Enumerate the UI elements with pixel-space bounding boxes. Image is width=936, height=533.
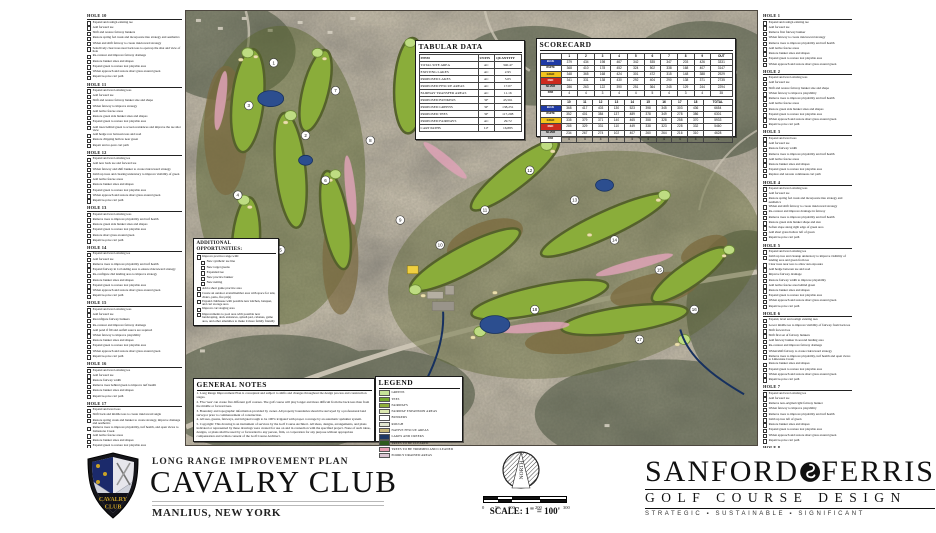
- hole-item-text: Add hedge row between tees and road: [93, 133, 142, 137]
- crest-club-name-line1: CAVALRY: [99, 497, 128, 503]
- quantity-cell: 5.05: [495, 76, 521, 83]
- hole-item-text: Remove non-original right fairway bunker: [769, 402, 823, 406]
- tabular-data-table: ITEMUNITSQUANTITYTOTAL SITE AREAAC340.47…: [419, 54, 522, 132]
- checkbox-icon: [763, 226, 767, 230]
- tabular-data-panel: TABULAR DATA ITEMUNITSQUANTITYTOTAL SITE…: [415, 40, 525, 140]
- hole-item: Repair/re-pave cart path: [87, 199, 182, 204]
- checkbox-icon: [87, 258, 91, 262]
- checkbox-icon: [763, 169, 767, 173]
- checkbox-icon: [87, 289, 91, 293]
- hole-item-text: Limb up trees and clearing understory to…: [93, 173, 180, 177]
- score-cell: 71: [704, 136, 732, 142]
- checkbox-icon: [87, 42, 91, 46]
- checkbox-icon: [763, 274, 767, 278]
- checkbox-icon: [763, 32, 767, 36]
- checkbox-icon: [87, 158, 91, 162]
- hole-item-text: Re-contour and improve drainage in fairw…: [769, 210, 826, 214]
- checkbox-icon: [87, 229, 91, 233]
- checkbox-icon: [763, 97, 767, 101]
- hole-block: HOLE 5Expand and level existing teeLimb …: [763, 243, 852, 310]
- hole-item-text: Repair and re-pave cart path: [93, 144, 129, 148]
- hole-block: HOLE 10Expand and realign existing teeAd…: [87, 13, 182, 80]
- checkbox-icon: [197, 313, 201, 317]
- score-cell: 4: [578, 90, 595, 96]
- hole-item-text: Expand green to restore lost playable ar…: [769, 368, 822, 372]
- item-cell: PROPOSED TEES: [419, 110, 478, 117]
- legend-panel: LEGEND GREENSTEESFAIRWAYSFAIRWAY EXPANSI…: [375, 376, 463, 442]
- hole-item-text: Repair/re-pave cart path: [93, 294, 124, 298]
- legend-swatch: [379, 434, 390, 439]
- hole-item-text: Expand, level and realign existing tees: [769, 318, 818, 322]
- legend-label: LAKES AND CREEKS: [392, 435, 424, 438]
- legend-swatch: [379, 390, 390, 395]
- item-cell: TOTAL SITE AREA: [419, 62, 478, 69]
- item-cell: EXISTING LAKES: [419, 69, 478, 76]
- hole-item-text: Add forward tee: [93, 313, 114, 317]
- hole-item-text: Widen and shift fairway to create risk/r…: [769, 205, 838, 209]
- hole-item-text: Widen/shift fairway to create risk/rewar…: [769, 350, 832, 354]
- column-header: QUANTITY: [495, 55, 521, 62]
- hole-item-text: Expand green to restore lost playable ar…: [93, 120, 146, 124]
- hole-item-text: Add hedge between tee and road: [769, 268, 811, 272]
- units-cell: SF: [478, 110, 495, 117]
- hole-item-text: Repair/re-pave cart path: [769, 123, 800, 127]
- general-note: 5. Copyright: This drawing is an instrum…: [197, 423, 372, 439]
- checkbox-icon: [87, 390, 91, 394]
- scorecard-back-nine: 101112131415161718TOTALBLUE3684174031305…: [540, 99, 733, 143]
- opportunity-text: Add a short game practice area: [202, 287, 242, 291]
- checkbox-icon: [763, 423, 767, 427]
- checkbox-icon: [763, 63, 767, 67]
- scale-bar-bottom-row: [483, 500, 567, 504]
- crest-club-name-line2: CLUB: [105, 505, 122, 511]
- checkbox-icon: [87, 134, 91, 138]
- checkbox-icon: [763, 279, 767, 283]
- legend-entry: POORLY DRAINED AREAS: [379, 453, 460, 458]
- hole-item-text: Restore fairway width to improve playabi…: [769, 279, 826, 283]
- general-notes-title: GENERAL NOTES: [197, 381, 372, 391]
- hole-item-text: Widen approach and restore short grass a…: [93, 70, 161, 74]
- checkbox-icon: [763, 211, 767, 215]
- hole-item-text: Widen fairway to improve strategy: [93, 105, 137, 109]
- north-label: NORTH: [519, 461, 525, 480]
- hole-item-text: Add forward tee: [769, 81, 790, 85]
- hole-item-text: Add forward tee: [93, 94, 114, 98]
- north-arrow-compass: NORTH: [501, 450, 541, 490]
- hole-item-text: Remove trees to improve playability and …: [769, 97, 835, 101]
- checkbox-icon: [763, 350, 767, 354]
- checkbox-icon: [87, 76, 91, 80]
- checkbox-icon: [87, 60, 91, 64]
- opportunity-item: Improvements to pool area with possible …: [197, 313, 276, 324]
- opportunity-sub-text: New target greens: [207, 266, 230, 270]
- checkbox-icon: [763, 103, 767, 107]
- units-cell: AC: [478, 62, 495, 69]
- tee-label: PAR: [540, 90, 561, 96]
- checkbox-icon: [763, 373, 767, 377]
- legend-swatch: [379, 422, 390, 427]
- additional-opportunities-panel: ADDITIONAL OPPORTUNITIES: Improve practi…: [193, 238, 279, 326]
- checkbox-icon: [763, 92, 767, 96]
- checkbox-icon: [763, 413, 767, 417]
- opportunity-sub-text: New practice bunker: [207, 276, 234, 280]
- legend-entry: TREES TO BE TRIMMED AND CLEANED: [379, 447, 460, 452]
- item-cell: PROPOSED GREENS: [419, 104, 478, 111]
- legend-swatch: [379, 447, 390, 452]
- checkbox-icon: [197, 300, 201, 304]
- checkbox-icon: [201, 271, 205, 275]
- checkbox-icon: [763, 305, 767, 309]
- score-cell: 35: [711, 90, 732, 96]
- hole-item-text: Add forward tee: [93, 374, 114, 378]
- checkbox-icon: [763, 153, 767, 157]
- checkbox-icon: [763, 429, 767, 433]
- score-cell: 4: [640, 136, 656, 142]
- hole-block: HOLE 7Expand and level existing teeAdd f…: [763, 384, 852, 443]
- table-row: EXISTING LAKESAC2.95: [419, 69, 521, 76]
- checkbox-icon: [87, 434, 91, 438]
- hole-item-text: Widen approach and restore short grass a…: [769, 118, 837, 122]
- checkbox-icon: [763, 158, 767, 162]
- hole-item-text: Remove trees to improve playability and …: [769, 413, 835, 417]
- legend-entry: TEES: [379, 397, 460, 402]
- checkbox-icon: [197, 308, 201, 312]
- legend-label: TEES: [392, 398, 400, 401]
- checkbox-icon: [87, 184, 91, 188]
- designer-divider-thin: [645, 508, 935, 509]
- hole-item-text: Widen approach and restore short grass a…: [769, 434, 837, 438]
- hole-item: Repair/re-pave cart path: [763, 236, 852, 241]
- legend-label: BUNKERS: [392, 416, 408, 419]
- hole-item-text: Restore bunker sizes and shapes: [769, 362, 810, 366]
- legend-swatch: [379, 415, 390, 420]
- checkbox-icon: [87, 55, 91, 59]
- checkbox-icon: [763, 42, 767, 46]
- hole-block: HOLE 8Expand and level teesAdd forward t…: [763, 445, 852, 448]
- legend-swatch: [379, 440, 390, 445]
- hole-block: HOLE 3Expand and level teesAdd forward t…: [763, 129, 852, 178]
- hole-item-text: Restore bunker sizes and shapes: [93, 183, 134, 187]
- score-cell: 5: [644, 90, 661, 96]
- checkbox-icon: [763, 334, 767, 338]
- hole-item-text: Remove trees to improve playability and …: [769, 216, 835, 220]
- checkbox-icon: [763, 198, 767, 202]
- club-name-title: CAVALRY CLUB: [150, 466, 397, 499]
- hole-item-text: Restore green side bunker shape and size: [769, 221, 821, 225]
- hole-item-text: Restore green side bunker sizes and shap…: [769, 108, 824, 112]
- units-cell: LF: [478, 124, 495, 131]
- checkbox-icon: [87, 284, 91, 288]
- designer-subtitle: GOLF COURSE DESIGN: [645, 491, 935, 506]
- checkbox-icon: [763, 319, 767, 323]
- score-cell: 3: [594, 90, 611, 96]
- table-row: PROPOSED BUNKERSSF43,561: [419, 97, 521, 104]
- hole-block: HOLE 6Expand, level and realign existing…: [763, 311, 852, 383]
- hole-item-text: Restore bunker sizes and shapes: [93, 339, 134, 343]
- hole-marker-number: 18: [532, 307, 537, 312]
- checkbox-icon: [763, 47, 767, 51]
- hole-item-text: Shift and restore fairway bunker size an…: [93, 99, 153, 103]
- units-cell: SF: [478, 104, 495, 111]
- legend-entry: TREES TO BE CLEARED: [379, 440, 460, 445]
- legend-entry: ROUGH: [379, 422, 460, 427]
- scorecard-panel: SCORECARD 123456789OUTBLUE37943419846734…: [536, 38, 736, 137]
- checkbox-icon: [87, 395, 91, 399]
- checkbox-icon: [763, 52, 767, 56]
- hole-item-text: Expand green to restore lost playable ar…: [769, 113, 822, 117]
- general-note: 3. Boundary and topographic information …: [197, 410, 372, 418]
- checkbox-icon: [763, 148, 767, 152]
- hole-item-text: Repair/re-pave cart path: [93, 239, 124, 243]
- checkbox-icon: [197, 287, 201, 291]
- quantity-cell: 117,208: [495, 110, 521, 117]
- checkbox-icon: [763, 256, 767, 260]
- hole-item-text: Remove trees to improve playability and …: [93, 263, 159, 267]
- checkbox-icon: [763, 284, 767, 288]
- scorecard-row: PAR44344543435: [540, 90, 732, 96]
- checkbox-icon: [87, 345, 91, 349]
- hole-marker-number: 11: [483, 208, 488, 213]
- hole-item: Repair/re-pave cart path: [763, 305, 852, 310]
- checkbox-icon: [87, 116, 91, 120]
- checkbox-icon: [87, 168, 91, 172]
- hole-item-text: Repair/re-pave cart path: [769, 378, 800, 382]
- checkbox-icon: [87, 65, 91, 69]
- checkbox-icon: [763, 295, 767, 299]
- checkbox-icon: [87, 139, 91, 143]
- checkbox-icon: [763, 268, 767, 272]
- checkbox-icon: [87, 419, 91, 423]
- checkbox-icon: [87, 329, 91, 333]
- checkbox-icon: [87, 71, 91, 75]
- checkbox-icon: [87, 308, 91, 312]
- hole-marker-number: 12: [527, 168, 532, 173]
- item-cell: PROPOSED FAIRWAYS: [419, 117, 478, 124]
- hole-marker-number: 14: [612, 238, 617, 243]
- checkbox-icon: [763, 87, 767, 91]
- checkbox-icon: [87, 144, 91, 148]
- hole-item-text: Shift and restore fairway bunkers: [93, 31, 136, 35]
- crest-shield-icon: CAVALRY CLUB: [84, 451, 142, 521]
- checkbox-icon: [87, 100, 91, 104]
- opportunity-text: Improvements to pool area with possible …: [202, 313, 275, 324]
- checkbox-icon: [87, 163, 91, 167]
- scorecard-row: PAR44435444471: [540, 136, 732, 142]
- clubhouse-highlight-marker: [407, 266, 418, 274]
- quantity-cell: 29.72: [495, 117, 521, 124]
- hole-item-text: Expand and level tees: [93, 408, 121, 412]
- checkbox-icon: [87, 427, 91, 431]
- checkbox-icon: [87, 21, 91, 25]
- hole-item-text: Widen approach and restore short grass a…: [769, 63, 837, 67]
- checkbox-icon: [763, 250, 767, 254]
- hole-item-text: Expand green to restore lost playable ar…: [93, 189, 146, 193]
- units-cell: AC: [478, 69, 495, 76]
- checkbox-icon: [763, 21, 767, 25]
- hole-item-text: Add forward tee: [769, 26, 790, 30]
- checkbox-icon: [763, 142, 767, 146]
- hole-item-text: Expand green to restore lost playable ar…: [93, 284, 146, 288]
- checkbox-icon: [763, 205, 767, 209]
- designer-name-right: FERRIS: [821, 457, 935, 487]
- checkbox-icon: [763, 300, 767, 304]
- checkbox-icon: [763, 355, 767, 359]
- hole-item-text: Expand green to restore lost playable ar…: [93, 65, 146, 69]
- column-header: UNITS: [478, 55, 495, 62]
- legend-entry: FAIRWAYS: [379, 403, 460, 408]
- hole-item-text: Add forward tee: [769, 397, 790, 401]
- table-row: TOTAL SITE AREAAC340.47: [419, 62, 521, 69]
- hole-item: Repair/re-pave cart path: [87, 355, 182, 360]
- checkbox-icon: [87, 279, 91, 283]
- hole-marker-number: 10: [438, 243, 443, 248]
- score-cell: 4: [661, 90, 678, 96]
- checkbox-icon: [197, 255, 201, 259]
- checkbox-icon: [763, 378, 767, 382]
- designer-name-left: SANFORD: [645, 457, 799, 487]
- hole-item: Repair/re-pave cart path: [763, 123, 852, 128]
- hole-item-text: Expand and level existing tee: [769, 250, 807, 254]
- checkbox-icon: [87, 224, 91, 228]
- opportunity-text: Improve practice range with:: [202, 255, 239, 259]
- checkbox-icon: [87, 445, 91, 448]
- hole-item-text: Restore bunker sizes and shapes: [93, 279, 134, 283]
- checkbox-icon: [87, 173, 91, 177]
- hole-item-text: Lower middle tee to improve visibility o…: [769, 324, 851, 328]
- hole-item-text: Add native fescue areas: [93, 110, 123, 114]
- hole-item: Expand green to restore lost playable ar…: [87, 444, 182, 448]
- item-cell: PROPOSED LAKES: [419, 76, 478, 83]
- plan-sheet: 123456789101112131415161718 HOLE 10Expan…: [0, 0, 936, 533]
- hole-item-text: Expand and level existing tee: [93, 369, 131, 373]
- checkbox-icon: [87, 409, 91, 413]
- scorecard-front-nine: 123456789OUTBLUE379434198467342535347203…: [540, 53, 733, 97]
- units-cell: AC: [478, 117, 495, 124]
- hole-item-text: Add native fescue areas: [769, 158, 799, 162]
- hole-title: HOLE 8: [763, 445, 852, 448]
- hole-marker-number: 13: [572, 198, 577, 203]
- checkbox-icon: [87, 268, 91, 272]
- checkbox-icon: [87, 313, 91, 317]
- hole-item-text: Add forward tee: [769, 142, 790, 146]
- checkbox-icon: [87, 218, 91, 222]
- tabular-header-row: ITEMUNITSQUANTITY: [419, 55, 521, 62]
- quantity-cell: 11.16: [495, 90, 521, 97]
- hole-item: Widen approach and restore short grass a…: [763, 63, 852, 68]
- checkbox-icon: [87, 32, 91, 36]
- hole-item-text: Expand green to restore lost playable ar…: [93, 444, 146, 448]
- club-location: MANLIUS, NEW YORK: [152, 507, 281, 519]
- hole-item-text: Repair/re-pave cart path: [769, 236, 800, 240]
- score-cell: 4: [628, 90, 645, 96]
- checkbox-icon: [763, 263, 767, 267]
- score-cell: 3: [609, 136, 625, 142]
- checkbox-icon: [763, 439, 767, 443]
- hole-item-text: Add fairway bunker in second landing are…: [769, 339, 824, 343]
- hole-item-text: Widen approach and restore short grass a…: [93, 350, 161, 354]
- checkbox-icon: [87, 234, 91, 238]
- score-cell: 3: [677, 90, 694, 96]
- legend-label: FAIRWAYS: [392, 404, 408, 407]
- hole-title: HOLE 1: [763, 13, 852, 20]
- hole-item-text: Expand and level existing tees: [769, 187, 808, 191]
- checkbox-icon: [87, 319, 91, 323]
- legend-entry: FAIRWAY EXPANSION AREAS: [379, 409, 460, 414]
- legend-label: FAIRWAY EXPANSION AREAS: [392, 410, 438, 413]
- hole-title: HOLE 15: [87, 300, 182, 307]
- hole-item-text: Restore fairway width: [93, 379, 121, 383]
- hole-item-text: Add pond if fill and outfall source are …: [93, 329, 153, 333]
- hole-item-text: Expand and level existing tees: [769, 76, 808, 80]
- hole-item-text: Expand and level existing tee: [93, 252, 131, 256]
- checkbox-icon: [763, 216, 767, 220]
- score-cell: 4: [593, 136, 609, 142]
- checkbox-icon: [763, 58, 767, 62]
- hole-block: HOLE 1Expand and realign existing teeAdd…: [763, 13, 852, 67]
- hole-notes-left: HOLE 10Expand and realign existing teeAd…: [87, 12, 182, 448]
- hole-item-text: Add short grass hollow left of green: [769, 231, 815, 235]
- hole-item-text: Expand and level existing tees: [93, 213, 132, 217]
- table-row: PROPOSED FAIRWAYSAC29.72: [419, 117, 521, 124]
- hole-item-text: Remove trees to improve playability and …: [769, 153, 835, 157]
- tee-label: PAR: [540, 136, 561, 142]
- hole-item-text: Expand and realign existing tee: [93, 21, 133, 25]
- hole-item-text: Add native fescue areas: [93, 434, 123, 438]
- checkbox-icon: [87, 340, 91, 344]
- hole-item: Repair/re-pave cart path: [763, 378, 852, 383]
- hole-notes-right: HOLE 1Expand and realign existing teeAdd…: [763, 12, 852, 448]
- legend-entry: GREENS: [379, 390, 460, 395]
- hole-item-text: Add native fescue area behind green: [769, 284, 815, 288]
- checkbox-icon: [87, 385, 91, 389]
- legend-label: GREENS: [392, 391, 405, 394]
- opportunity-sub-text: New synthetic tee line: [207, 260, 235, 264]
- item-cell: PROPOSED BUNKERS: [419, 97, 478, 104]
- legend-entry: BUNKERS: [379, 415, 460, 420]
- hole-item-text: Remove trees to improve playability and …: [769, 42, 835, 46]
- opportunity-sub-text: Expanded tee: [207, 271, 224, 275]
- hole-block: HOLE 15Expand and level existing teesAdd…: [87, 300, 182, 359]
- hole-title: HOLE 7: [763, 384, 852, 391]
- hole-item-text: Restore chipping hollow near green: [93, 138, 139, 142]
- checkbox-icon: [87, 213, 91, 217]
- checkbox-icon: [201, 261, 205, 265]
- legend-label: TREES TO BE TRIMMED AND CLEANED: [392, 448, 454, 451]
- units-cell: AC: [478, 90, 495, 97]
- hole-block: HOLE 13Expand and level existing teesRem…: [87, 205, 182, 243]
- quantity-cell: 2.95: [495, 69, 521, 76]
- cavalry-club-crest: CAVALRY CLUB: [84, 451, 142, 523]
- north-arrow-icon: NORTH: [501, 450, 541, 490]
- checkbox-icon: [763, 174, 767, 178]
- hole-item-text: Widen approach and restore short grass a…: [769, 299, 837, 303]
- checkbox-icon: [763, 187, 767, 191]
- legend-label: NATIVE FESCUE AREAS: [392, 429, 429, 432]
- hole-item-text: Add forward tee: [769, 192, 790, 196]
- score-cell: 4: [672, 136, 688, 142]
- hole-item-text: Repair/re-pave cart path: [93, 355, 124, 359]
- item-cell: CART PATHS: [419, 124, 478, 131]
- opportunity-text: Improve cart staging area: [202, 307, 234, 311]
- legend-swatch: [379, 453, 390, 458]
- tabular-data-title: TABULAR DATA: [419, 43, 522, 53]
- item-cell: FAIRWAY TRANSFER AREAS: [419, 90, 478, 97]
- checkbox-icon: [197, 292, 201, 296]
- hole-item-text: Widen approach and restore short grass a…: [93, 194, 161, 198]
- hole-item-text: Widen approach and restore short grass a…: [769, 373, 837, 377]
- checkbox-icon: [87, 47, 91, 51]
- legend-list: GREENSTEESFAIRWAYSFAIRWAY EXPANSION AREA…: [379, 390, 460, 458]
